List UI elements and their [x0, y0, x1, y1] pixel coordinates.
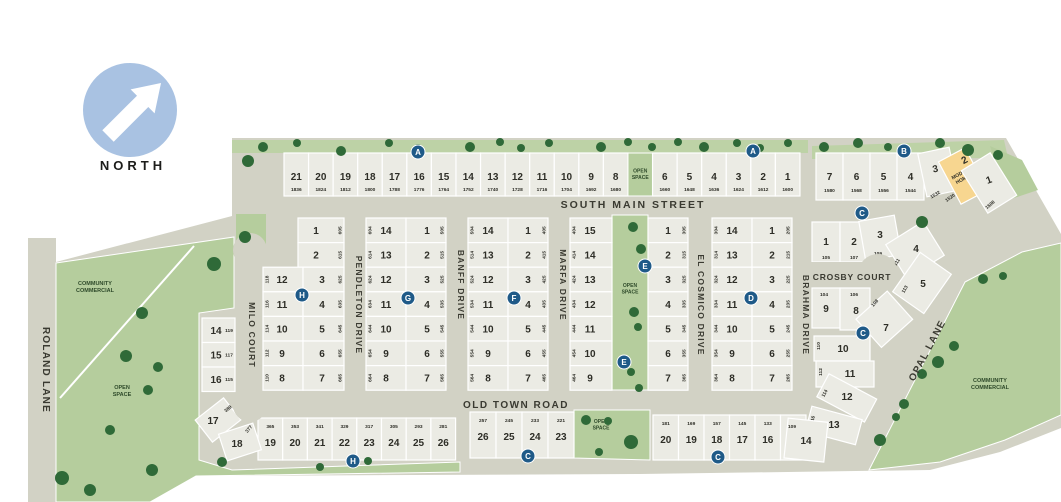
open_space-label: SPACE: [622, 290, 640, 296]
lot-address: 235: [786, 300, 792, 308]
lot-number: 6: [665, 349, 671, 360]
lot-address: 1636: [709, 187, 720, 193]
tree-icon: [146, 464, 158, 476]
lot-address: 293: [415, 424, 423, 430]
lot-address: 655: [338, 349, 344, 357]
lot-address: 118: [265, 275, 271, 283]
tree-icon: [628, 222, 638, 232]
street-label-brahma: BRAHMA DRIVE: [801, 275, 811, 355]
lot-number: 9: [588, 172, 594, 183]
lot-number: 14: [584, 251, 596, 262]
tree-icon: [635, 384, 643, 392]
lot-address: 106: [850, 292, 858, 298]
tree-icon: [627, 368, 635, 376]
lot-number: 7: [424, 374, 430, 385]
tree-icon: [636, 244, 646, 254]
lot-number: 14: [482, 226, 494, 237]
lot-number: 6: [769, 349, 775, 360]
lot-address: 245: [505, 418, 513, 424]
tree-icon: [884, 143, 892, 151]
lot-number: 9: [823, 304, 829, 315]
lot-number: 10: [584, 349, 596, 360]
lot-address: 1612: [758, 187, 769, 193]
lot-address: 233: [531, 418, 539, 424]
lot-address: 257: [479, 418, 487, 424]
lot-address: 1692: [586, 187, 597, 193]
lot-number: 10: [561, 172, 573, 183]
community_commercial-label: COMMUNITY: [973, 378, 1007, 384]
lot-address: 109: [788, 424, 796, 430]
lot-address: 110: [265, 374, 271, 382]
tree-icon: [819, 142, 829, 152]
tree-icon: [604, 417, 612, 425]
lot-number: 14: [726, 226, 738, 237]
tree-icon: [364, 457, 372, 465]
lot-address: 644: [368, 324, 374, 332]
lot-number: 16: [414, 172, 426, 183]
lot-number: 9: [383, 349, 389, 360]
lot-number: 2: [769, 251, 775, 262]
lot-address: 265: [786, 374, 792, 382]
lot-address: 444: [572, 324, 578, 332]
lot-number: 7: [665, 374, 671, 385]
lot-number: 14: [380, 226, 392, 237]
map-marker-letter: E: [621, 358, 627, 367]
lot-number: 8: [613, 172, 619, 183]
lot-address: 354: [714, 349, 720, 357]
lot-address: 635: [338, 300, 344, 308]
lot-address: 405: [542, 226, 548, 234]
open_space-label: OPEN: [623, 283, 638, 289]
lot-number: 12: [841, 392, 853, 403]
lot-number: 4: [913, 244, 919, 255]
lot-address: 645: [338, 324, 344, 332]
lot-address: 1568: [851, 188, 862, 194]
tree-icon: [153, 362, 163, 372]
lot-number: 20: [660, 435, 672, 446]
lot-address: 1728: [512, 187, 523, 193]
tree-icon: [874, 434, 886, 446]
lot-address: 317: [365, 424, 373, 430]
lot-number: 17: [207, 416, 219, 427]
lot-number: 2: [424, 251, 430, 262]
lot-number: 20: [289, 438, 301, 449]
street-label-pendleton: PENDLETON DRIVE: [354, 256, 364, 355]
lot-address: 554: [470, 349, 476, 357]
lot-address: 1752: [463, 187, 474, 193]
lot-number: 4: [665, 300, 671, 311]
tree-icon: [853, 138, 863, 148]
open_space-label: OPEN: [114, 385, 130, 391]
lot-number: 3: [769, 275, 775, 286]
tree-icon: [784, 139, 792, 147]
lot-number: 6: [525, 349, 531, 360]
lot-address: 1624: [733, 187, 744, 193]
lot-number: 9: [729, 349, 735, 360]
lot-number: 7: [827, 172, 833, 183]
lot-number: 4: [525, 300, 531, 311]
lot-address: 1740: [488, 187, 499, 193]
map-marker-letter: H: [299, 291, 305, 300]
lot-number: 14: [463, 172, 475, 183]
lot-number: 11: [585, 324, 596, 335]
lot-address: 1824: [316, 187, 327, 193]
lot-address: 205: [786, 226, 792, 234]
lot-address: 625: [338, 275, 344, 283]
lot-address: 1800: [365, 187, 376, 193]
lot-1[interactable]: [298, 218, 344, 243]
lot-number: 5: [881, 172, 887, 183]
open_space-label: SPACE: [632, 175, 650, 181]
tree-icon: [55, 471, 69, 485]
lot-address: 665: [338, 374, 344, 382]
lot-address: 605: [338, 226, 344, 234]
lot-number: 2: [760, 172, 766, 183]
map-marker-letter: E: [642, 262, 648, 271]
lot-address: 117: [225, 353, 233, 359]
lot-address: 1704: [561, 187, 572, 193]
lot-address: 415: [542, 251, 548, 259]
lot-number: 1: [823, 237, 829, 248]
lot-number: 17: [737, 435, 749, 446]
lot-number: 15: [210, 351, 222, 362]
lot-number: 18: [711, 435, 723, 446]
lot-address: 545: [440, 324, 446, 332]
lot-number: 3: [525, 275, 531, 286]
lot-address: 434: [572, 300, 578, 308]
lot-number: 1: [769, 226, 775, 237]
lot-number: 8: [485, 374, 491, 385]
tree-icon: [624, 138, 632, 146]
lot-address: 435: [542, 300, 548, 308]
map-marker-letter: C: [715, 453, 721, 462]
lot-number: 12: [276, 275, 288, 286]
lot-address: 425: [542, 275, 548, 283]
lot-address: 112: [818, 368, 824, 376]
map-marker-letter: D: [748, 294, 754, 303]
lot-address: 654: [368, 349, 374, 357]
street-label-roland: ROLAND LANE: [40, 327, 51, 413]
lot-number: 1: [313, 226, 319, 237]
lot-address: 624: [368, 275, 374, 283]
lot-number: 12: [380, 275, 392, 286]
map-marker-letter: C: [860, 329, 866, 338]
tree-icon: [239, 231, 251, 243]
lot-address: 169: [687, 421, 695, 427]
lot-address: 314: [714, 251, 720, 259]
lot-address: 112: [265, 349, 271, 357]
lot-number: 23: [364, 438, 376, 449]
tree-icon: [935, 138, 945, 148]
lot-number: 10: [482, 324, 494, 335]
lot-number: 5: [920, 279, 926, 290]
tree-icon: [949, 341, 959, 351]
lot-address: 225: [786, 275, 792, 283]
lot-number: 7: [319, 374, 325, 385]
tree-icon: [293, 139, 301, 147]
lot-address: 104: [820, 292, 828, 298]
lot-address: 181: [662, 421, 670, 427]
lot-number: 12: [584, 300, 596, 311]
lot-address: 614: [368, 251, 374, 259]
lot-number: 4: [424, 300, 430, 311]
lot-number: 19: [265, 438, 277, 449]
tree-icon: [629, 307, 639, 317]
lot-number: 13: [482, 251, 494, 262]
lot-address: 110: [816, 342, 822, 350]
lot-number: 1: [785, 172, 791, 183]
lot-number: 5: [319, 324, 325, 335]
map-marker-letter: H: [350, 457, 356, 466]
lot-number: 2: [851, 237, 857, 248]
lot-address: 1776: [414, 187, 425, 193]
lot-address: 341: [316, 424, 324, 430]
lot-number: 3: [877, 230, 883, 241]
lot-address: 1812: [340, 187, 351, 193]
lot-number: 5: [424, 324, 430, 335]
lot-address: 514: [470, 251, 476, 259]
tree-icon: [217, 457, 227, 467]
lot-address: 664: [368, 374, 374, 382]
street-label-crosby: CROSBY COURT: [813, 272, 891, 282]
tree-icon: [465, 142, 475, 152]
lot-number: 21: [291, 172, 303, 183]
lot-address: 305: [390, 424, 398, 430]
tree-icon: [207, 257, 221, 271]
lot-number: 2: [525, 251, 531, 262]
lot-address: 215: [786, 251, 792, 259]
lot-address: 454: [572, 349, 578, 357]
lot-address: 305: [682, 226, 688, 234]
lot-address: 555: [440, 349, 446, 357]
lot-number: 2: [313, 251, 319, 262]
lot-address: 504: [470, 226, 476, 234]
lot-address: 455: [542, 349, 548, 357]
tree-icon: [258, 142, 268, 152]
lot-number: 19: [686, 435, 698, 446]
lot-address: 325: [682, 275, 688, 283]
lot-number: 8: [383, 374, 389, 385]
lot-address: 615: [338, 251, 344, 259]
street-label-el-cosmico: EL COSMICO DRIVE: [696, 254, 706, 355]
lot-number: 14: [800, 436, 812, 447]
open_space-label: SPACE: [113, 392, 132, 398]
lot-number: 13: [584, 275, 596, 286]
lot-number: 6: [854, 172, 860, 183]
tree-icon: [517, 144, 525, 152]
tree-icon: [999, 272, 1007, 280]
lot-number: 10: [837, 344, 849, 355]
lot-address: 445: [542, 324, 548, 332]
lot-address: 364: [714, 374, 720, 382]
lot-address: 115: [225, 377, 233, 383]
tree-icon: [143, 385, 153, 395]
lot-number: 25: [413, 438, 425, 449]
lot-address: 116: [265, 300, 271, 308]
street-label-south-main: SOUTH MAIN STREET: [561, 199, 706, 211]
lot-number: 11: [537, 172, 548, 183]
lot-address: 414: [572, 251, 578, 259]
lot-number: 7: [769, 374, 775, 385]
lot-number: 1: [424, 226, 430, 237]
lot-number: 16: [210, 375, 222, 386]
lot-address: 604: [368, 226, 374, 234]
lot-number: 9: [485, 349, 491, 360]
lot-number: 1: [665, 226, 671, 237]
lot-number: 11: [277, 300, 288, 311]
lot-address: 1580: [824, 188, 835, 194]
lot-number: 15: [438, 172, 450, 183]
map-marker-letter: C: [859, 209, 865, 218]
tree-icon: [595, 448, 603, 456]
lot-address: 634: [368, 300, 374, 308]
lot-address: 119: [225, 328, 233, 334]
tree-icon: [120, 350, 132, 362]
lot-address: 221: [557, 418, 565, 424]
lot-address: 281: [439, 424, 447, 430]
community_commercial-label: COMMERCIAL: [76, 288, 115, 294]
lot-number: 6: [319, 349, 325, 360]
lot-number: 8: [729, 374, 735, 385]
street-label-milo: MILO COURT: [247, 302, 257, 368]
lot-address: 344: [714, 324, 720, 332]
lot-number: 13: [487, 172, 499, 183]
lot-number: 12: [512, 172, 524, 183]
tree-icon: [581, 415, 591, 425]
lot-number: 18: [231, 439, 243, 450]
community_commercial-label: COMMUNITY: [78, 281, 112, 287]
lot-number: 4: [769, 300, 775, 311]
lot-address: 565: [440, 374, 446, 382]
lot-number: 6: [662, 172, 668, 183]
tree-icon: [496, 138, 504, 146]
lot-address: 1680: [610, 187, 621, 193]
street-label-banff: BANFF DRIVE: [456, 250, 466, 320]
lot-number: 3: [319, 275, 325, 286]
tree-icon: [648, 143, 656, 151]
lot-address: 534: [470, 300, 476, 308]
lot-address: 1836: [291, 187, 302, 193]
lot-address: 564: [470, 374, 476, 382]
tree-icon: [993, 150, 1003, 160]
lot-number: 9: [279, 349, 285, 360]
open_space-label: OPEN: [633, 169, 648, 175]
lot-number: 26: [438, 438, 450, 449]
lot-address: 424: [572, 275, 578, 283]
tree-icon: [105, 425, 115, 435]
lot-address: 145: [738, 421, 746, 427]
lot-number: 6: [424, 349, 430, 360]
tree-icon: [242, 155, 254, 167]
lot-address: 1556: [878, 188, 889, 194]
lot-number: 21: [314, 438, 326, 449]
tree-icon: [733, 139, 741, 147]
lot-address: 304: [714, 226, 720, 234]
street-label-old-town: OLD TOWN ROAD: [463, 400, 569, 411]
lot-address: 535: [440, 300, 446, 308]
tree-icon: [624, 435, 638, 449]
lot-number: 3: [736, 172, 742, 183]
lot-number: 4: [908, 172, 914, 183]
lot-address: 1600: [782, 187, 793, 193]
lot-address: 365: [266, 424, 274, 430]
lot-number: 5: [687, 172, 693, 183]
lot-address: 335: [682, 300, 688, 308]
lot-address: 157: [713, 421, 721, 427]
lot-number: 17: [389, 172, 401, 183]
lot-address: 1648: [684, 187, 695, 193]
lot-address: 107: [850, 255, 858, 261]
tree-icon: [962, 144, 974, 156]
map-marker-letter: A: [750, 147, 756, 156]
lot-address: 1788: [389, 187, 400, 193]
lot-number: 3: [424, 275, 430, 286]
lot-number: 26: [477, 432, 489, 443]
map-canvas: 2118362018241918121818001717881617761517…: [0, 0, 1061, 502]
lot-address: 365: [682, 374, 688, 382]
tree-icon: [932, 356, 944, 368]
lot-address: 1716: [537, 187, 548, 193]
map-marker-letter: F: [512, 294, 517, 303]
lot-number: 11: [727, 300, 738, 311]
lot-number: 13: [380, 251, 392, 262]
tree-icon: [674, 138, 682, 146]
lot-number: 25: [503, 432, 515, 443]
lot-number: 13: [828, 420, 840, 431]
milo-court-bulb-south: [233, 388, 267, 422]
lot-number: 22: [339, 438, 351, 449]
lot-number: 4: [711, 172, 717, 183]
lot-address: 105: [822, 255, 830, 261]
lot-number: 20: [315, 172, 327, 183]
lot-number: 24: [529, 432, 541, 443]
lot-address: 464: [572, 374, 578, 382]
lot-address: 324: [714, 275, 720, 283]
lot-number: 15: [584, 226, 596, 237]
lot-number: 24: [388, 438, 400, 449]
lot-address: 404: [572, 226, 578, 234]
lot-number: 9: [587, 374, 593, 385]
map-marker-letter: A: [415, 148, 421, 157]
lot-number: 10: [380, 324, 392, 335]
lot-address: 255: [786, 349, 792, 357]
lot-number: 13: [726, 251, 738, 262]
tree-icon: [545, 139, 553, 147]
lot-address: 544: [470, 324, 476, 332]
street-label-marfa: MARFA DRIVE: [558, 249, 568, 320]
lot-number: 4: [319, 300, 325, 311]
lot-address: 465: [542, 374, 548, 382]
lot-address: 353: [291, 424, 299, 430]
lot-number: 23: [555, 432, 567, 443]
lot-number: 14: [210, 326, 222, 337]
lot-address: 329: [340, 424, 348, 430]
tree-icon: [892, 413, 900, 421]
tree-icon: [596, 142, 606, 152]
lot-number: 2: [665, 251, 671, 262]
lot-number: 11: [845, 369, 856, 380]
lot-number: 10: [276, 324, 288, 335]
map-marker-letter: G: [405, 294, 411, 303]
lot-2[interactable]: [298, 243, 344, 268]
lot-address: 505: [440, 226, 446, 234]
lot-address: 524: [470, 275, 476, 283]
lot-number: 11: [483, 300, 494, 311]
lot-address: 1764: [438, 187, 449, 193]
tree-icon: [316, 463, 324, 471]
tree-icon: [385, 139, 393, 147]
lot-address: 315: [682, 251, 688, 259]
